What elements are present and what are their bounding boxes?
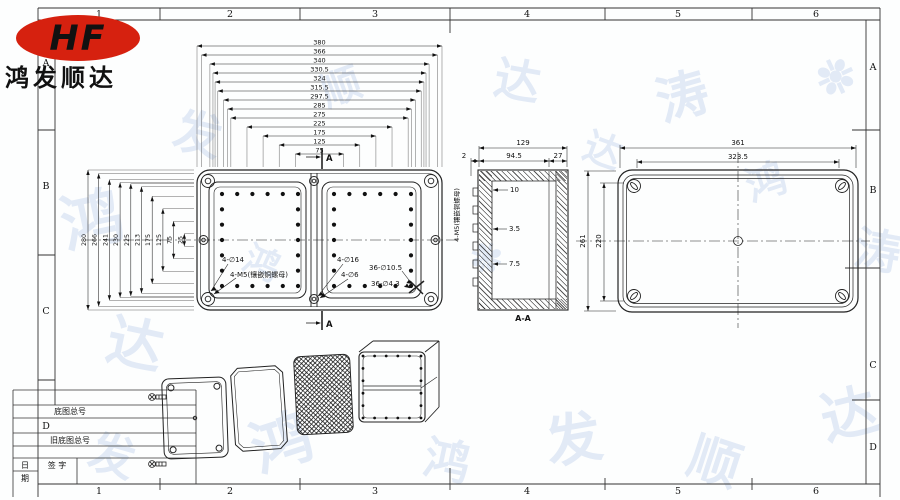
hole-dot [420,367,423,370]
dim-label-top: 315.5 [310,83,329,91]
hole-dot [394,192,398,196]
ann-grid-hole1: 36-∅10.5 [369,264,402,272]
hole-dot [296,192,300,196]
arrowhead [213,71,218,74]
ann-mid-hole: 4-∅16 [337,256,360,264]
hole-dot [362,417,365,420]
hole-dot [220,192,224,196]
arrowhead [493,262,498,265]
hole-dot [385,355,388,358]
section-letter-bottom: A [326,320,333,330]
hole-dot [409,223,413,227]
hole-dot [378,284,382,288]
arrowhead [210,62,215,65]
arrowhead [211,287,217,292]
arrowhead [602,183,605,188]
dim-label-top: 175 [313,128,325,136]
hole-dot [266,192,270,196]
ruler-row-left: D [42,421,50,432]
hole-dot [220,284,224,288]
arrowhead [416,89,421,92]
hole-dot [220,238,224,242]
dim-width-outer: 361 [731,139,744,147]
hole-dot [362,392,365,395]
hole-dot [296,238,300,242]
arrowhead [108,180,111,185]
arrowhead [140,288,143,293]
arrowhead [231,116,236,119]
section-label: A-A [515,314,532,323]
ruler-col-top: 5 [675,9,681,20]
section-side-note: 4-M5(镶嵌铜螺母) [452,188,461,242]
hole-dot [296,207,300,211]
hole-dot [409,192,413,196]
sheet-frame [38,8,880,497]
hole-dot [235,192,239,196]
ruler-col-bottom: 3 [372,486,378,497]
hole-dot [420,392,423,395]
hole-dot [408,417,411,420]
dimension-chain-left: 2802662412302252131751257525 [81,170,194,310]
dim-label-top: 225 [313,119,325,127]
arrowhead [151,196,154,201]
hole-dot [266,284,270,288]
title-sign-bottom: 期 [21,474,29,483]
ruler-col-bottom: 1 [96,486,102,497]
hole-dot [373,355,376,358]
hole-dot [409,269,413,273]
arrowhead [224,98,229,101]
title-row1: 底图总号 [54,406,86,416]
hole-dot [220,223,224,227]
arrowhead [172,254,175,259]
arrowhead [620,146,625,149]
exploded-box-hole-dots [362,355,423,420]
dimension-arrowheads [211,146,856,324]
dim-label-top: 285 [313,101,325,109]
dim-label-left: 280 [81,234,88,246]
arrowhead [586,171,589,176]
ruler-row-left: B [43,181,50,192]
arrowhead [218,89,223,92]
dim-label-top: 366 [313,47,325,55]
hole-dot [332,207,336,211]
dim-lid: 27 [554,152,563,160]
ruler-col-top: 4 [524,9,530,20]
arrowhead [410,98,415,101]
dim-label-left: 25 [177,236,184,244]
arrowhead [549,159,554,162]
hole-dot [332,238,336,242]
ruler-labels: 112233445566AABBCCDD [42,9,878,497]
arrowhead [479,159,484,162]
arrowhead [562,146,567,149]
arrowhead [637,160,642,163]
dim-total: 129 [516,139,529,147]
ruler-row-right: D [869,442,877,453]
hole-dot [394,284,398,288]
title-row2: 旧底图总号 [50,435,90,445]
hole-dot [347,284,351,288]
arrowhead [129,291,132,296]
hole-dot [408,355,411,358]
arrowhead [215,80,220,83]
arrowhead [86,305,89,310]
ruler-row-right: B [870,185,877,196]
arrowhead [197,44,202,47]
arrowhead [544,159,549,162]
dim-rib1: 10 [510,186,519,194]
dim-label-left: 266 [92,234,99,246]
hole-dot [281,192,285,196]
ruler-col-bottom: 2 [227,486,233,497]
arrowhead [161,209,164,214]
arrowhead [834,160,839,163]
hole-dot [420,355,423,358]
dim-body: 94.5 [506,152,522,160]
ruler-row-left: C [42,306,49,317]
exploded-gasket [230,365,288,451]
hole-dot [296,269,300,273]
dim-label-top: 75 [315,146,323,154]
dim-label-left: 230 [113,234,120,246]
exploded-box [359,341,439,422]
hole-dot [332,284,336,288]
hole-dot [332,192,336,196]
arrowhead [118,183,121,188]
dim-label-left: 175 [145,234,152,246]
dim-width-inner: 323.5 [728,153,748,161]
top-view [576,145,870,328]
ruler-col-top: 2 [227,9,233,20]
arrowhead [339,152,344,155]
hole-dot [420,379,423,382]
dim-label-top: 330.5 [310,65,329,73]
section-letter-top: A [326,154,333,164]
hole-dot [409,207,413,211]
hole-dot [296,223,300,227]
hole-dot [220,253,224,257]
arrowhead [228,107,233,110]
arrowhead [316,321,321,324]
hole-dot [409,238,413,242]
hole-dot [420,417,423,420]
arrowhead [406,107,411,110]
arrowhead [355,143,360,146]
title-sign-right: 签 字 [48,460,67,470]
dim-label-left: 213 [135,234,142,246]
section-view-labels: 129 2 94.5 27 10 3.5 7.5 A-A 4-M5(镶嵌铜螺母) [452,139,562,323]
top-view-labels: 361 323.5 261 220 [579,139,748,248]
arrowhead [421,71,426,74]
ruler-row-right: C [869,360,876,371]
arrowhead [371,134,376,137]
dim-rib2: 3.5 [509,225,520,233]
dim-left: 2 [462,152,466,160]
dim-height-inner: 220 [595,234,603,247]
ann-corner-hole: 4-∅14 [222,256,245,264]
hole-dot [362,379,365,382]
arrowhead [562,159,567,162]
ruler-col-top: 3 [372,9,378,20]
arrowhead [151,279,154,284]
company-name: 鸿发顺达 [5,64,117,92]
dim-label-top: 297.5 [310,92,329,100]
dim-height-outer: 261 [579,234,587,247]
arrowhead [474,159,479,162]
arrowhead [403,116,408,119]
arrowhead [586,306,589,311]
title-sign-left: 日 [21,461,29,470]
dim-label-top: 125 [313,137,325,145]
ruler-col-top: 6 [813,9,819,20]
hole-dot [363,192,367,196]
hole-dot [332,269,336,273]
arrowhead [97,174,100,179]
arrowhead [432,53,437,56]
dim-label-left: 75 [167,236,174,244]
company-logo: HF 鸿发顺达 [5,15,140,92]
dim-label-top: 275 [313,110,325,118]
hole-dot [373,417,376,420]
arrowhead [247,125,252,128]
arrowhead [479,146,484,149]
hole-dot [296,253,300,257]
exploded-mesh-plate [293,354,354,436]
arrowhead [437,44,442,47]
ann-corner-insert: 4-M5(镶嵌铜螺母) [230,270,288,279]
arrowhead [86,170,89,175]
hole-dot [420,404,423,407]
dim-label-left: 125 [156,234,163,246]
hole-dot [378,192,382,196]
arrowhead [424,62,429,65]
arrowhead [316,155,321,158]
hole-dot [220,207,224,211]
hole-dot [396,417,399,420]
ruler-col-bottom: 6 [813,486,819,497]
hole-dot [332,223,336,227]
dim-label-top: 340 [313,56,325,64]
hole-dot [396,355,399,358]
ruler-col-bottom: 5 [675,486,681,497]
dim-label-top: 380 [313,38,325,46]
dim-label-left: 225 [124,234,131,246]
arrowhead [279,143,284,146]
hole-dot [362,367,365,370]
dimension-chain-top: 380366340330.5324315.5297.52852752251751… [197,38,442,167]
arrowhead [263,134,268,137]
arrowhead [161,266,164,271]
hole-dot [362,355,365,358]
ruler-row-right: A [869,62,877,73]
hole-dot [250,284,254,288]
dim-label-left: 241 [102,234,109,246]
ann-mid-hole2: 4-∅6 [341,271,359,279]
dim-rib3: 7.5 [509,260,520,268]
dim-label-top: 324 [313,74,325,82]
hole-dot [296,284,300,288]
arrowhead [602,296,605,301]
ruler-col-bottom: 4 [524,486,530,497]
title-block-labels: 底图总号 旧底图总号 日 签 字 期 [21,406,90,483]
arrowhead [172,221,175,226]
hole-dot [385,417,388,420]
arrowhead [140,187,143,192]
arrowhead [419,80,424,83]
hole-dot [347,192,351,196]
hole-dot [281,284,285,288]
logo-text: HF [49,19,106,59]
hole-dot [332,253,336,257]
hole-dot [235,284,239,288]
hole-dot [220,269,224,273]
hole-dot [362,404,365,407]
arrowhead [493,188,498,191]
arrowhead [129,184,132,189]
arrowhead [97,302,100,307]
arrowhead [387,125,392,128]
hole-dot [363,284,367,288]
arrowhead [493,227,498,230]
drawing-sheet: 鸿发顺达涛❉达鸿鸿发顺达涛❉达鸿鸿发 112233445566AABBCC [0,0,900,500]
cad-drawing: 112233445566AABBCCDD 底图总号 旧底图总号 日 签 字 期 … [0,0,900,500]
arrowhead [851,146,856,149]
arrowhead [118,293,121,298]
arrowhead [295,152,300,155]
hole-dot [250,192,254,196]
arrowhead [108,295,111,300]
arrowhead [202,53,207,56]
hole-dot [409,253,413,257]
